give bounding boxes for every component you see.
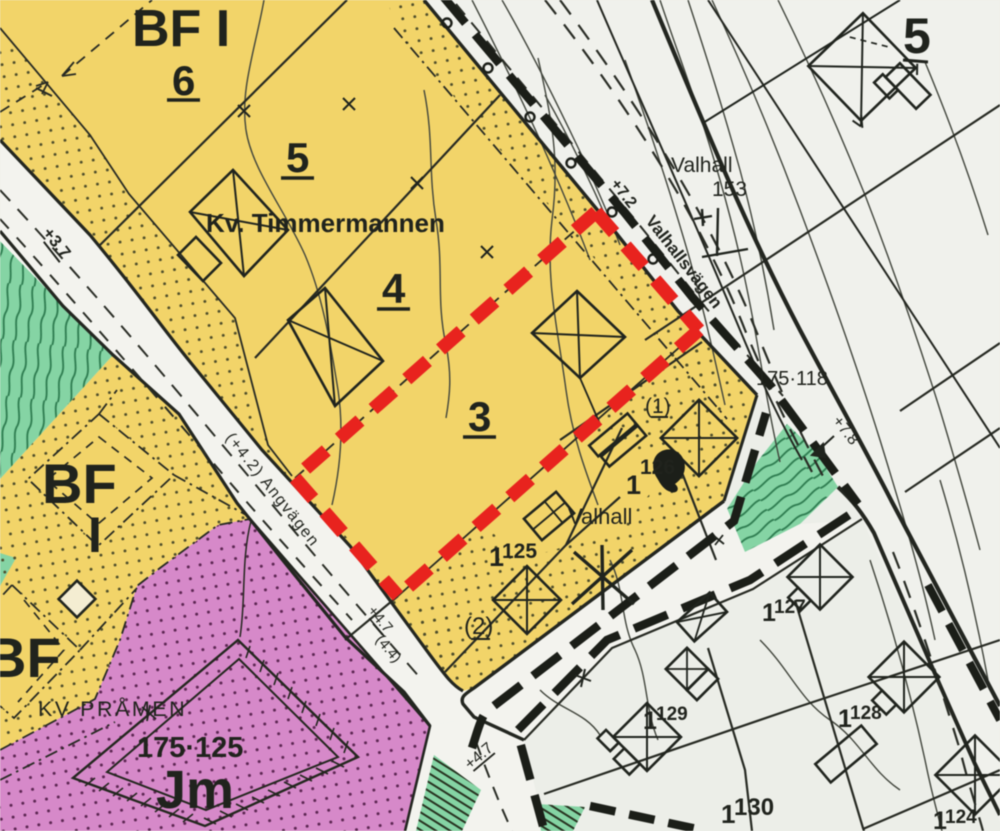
svg-text:BF I: BF I bbox=[132, 0, 230, 58]
svg-text:1: 1 bbox=[626, 470, 641, 500]
svg-text:Kv. Timmermannen: Kv. Timmermannen bbox=[206, 208, 445, 238]
svg-text:Valhall: Valhall bbox=[671, 154, 732, 177]
svg-text:BF: BF bbox=[42, 452, 117, 515]
svg-text:128: 128 bbox=[850, 703, 882, 724]
svg-text:6: 6 bbox=[172, 57, 195, 104]
svg-text:130: 130 bbox=[734, 794, 774, 821]
svg-text:I: I bbox=[88, 507, 102, 563]
svg-text:175·118: 175·118 bbox=[756, 368, 828, 390]
svg-text:126: 126 bbox=[640, 456, 675, 479]
svg-text:5: 5 bbox=[903, 8, 931, 64]
svg-text:Jm: Jm bbox=[156, 760, 234, 820]
svg-text:(1): (1) bbox=[645, 395, 671, 418]
svg-text:124: 124 bbox=[945, 807, 977, 828]
svg-text:(2): (2) bbox=[464, 613, 493, 640]
svg-text:Valhall: Valhall bbox=[568, 504, 632, 529]
svg-text:127: 127 bbox=[774, 597, 806, 618]
svg-text:4: 4 bbox=[382, 265, 406, 312]
svg-text:1: 1 bbox=[643, 707, 657, 735]
svg-text:153: 153 bbox=[712, 178, 747, 201]
svg-text:KV PRÅMEN: KV PRÅMEN bbox=[38, 697, 187, 721]
svg-text:125: 125 bbox=[502, 540, 537, 563]
svg-text:BF: BF bbox=[0, 626, 61, 689]
svg-text:5: 5 bbox=[286, 134, 309, 181]
svg-text:129: 129 bbox=[656, 704, 688, 725]
svg-text:3: 3 bbox=[468, 393, 491, 440]
